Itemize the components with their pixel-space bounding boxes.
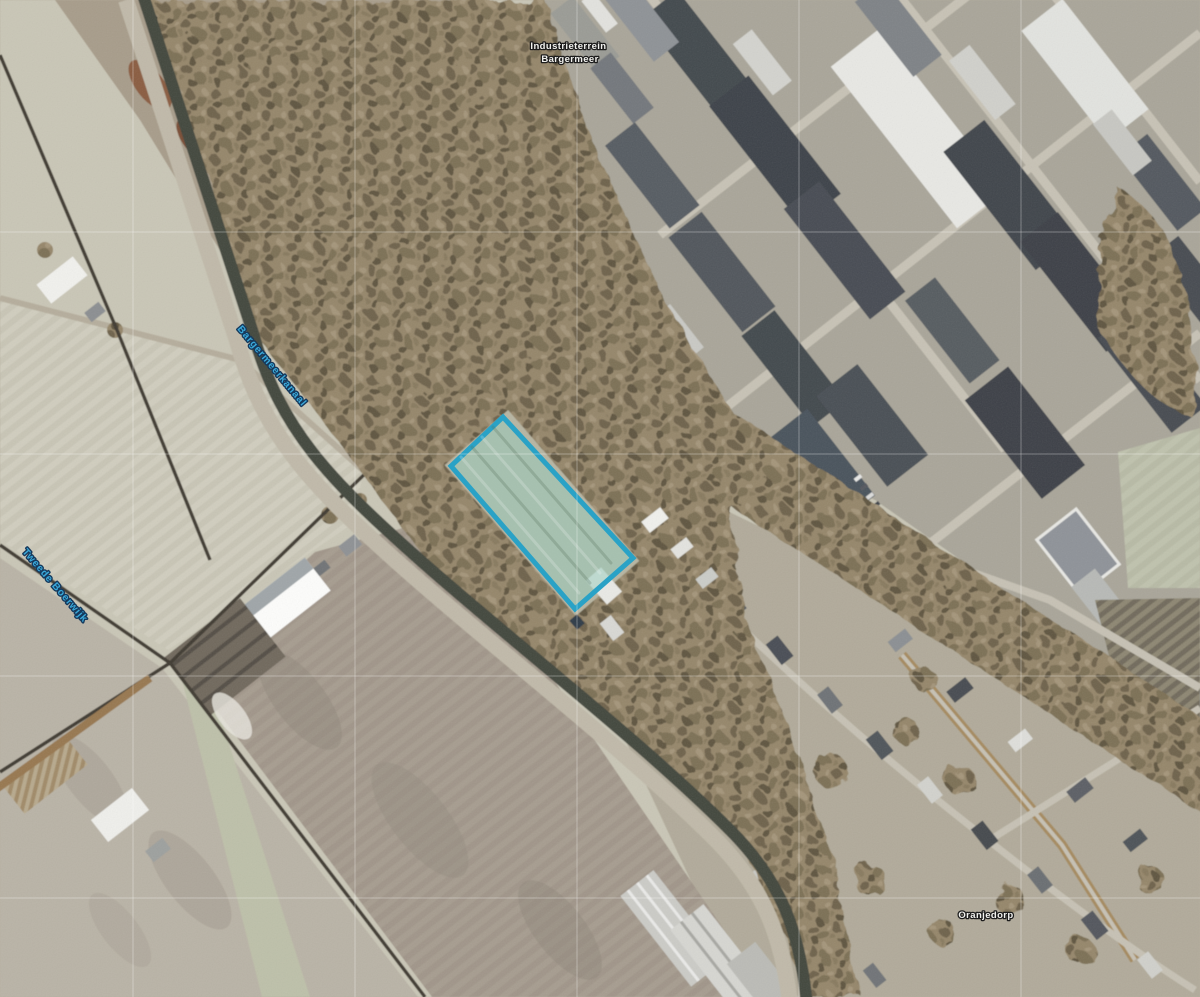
village-label: Oranjedorp [958,910,1013,921]
photo-grain-overlay [0,0,1200,997]
map-viewport[interactable]: Industrieterrein Bargermeer Bargermeerka… [0,0,1200,997]
map-canvas[interactable]: Industrieterrein Bargermeer Bargermeerka… [0,0,1200,997]
